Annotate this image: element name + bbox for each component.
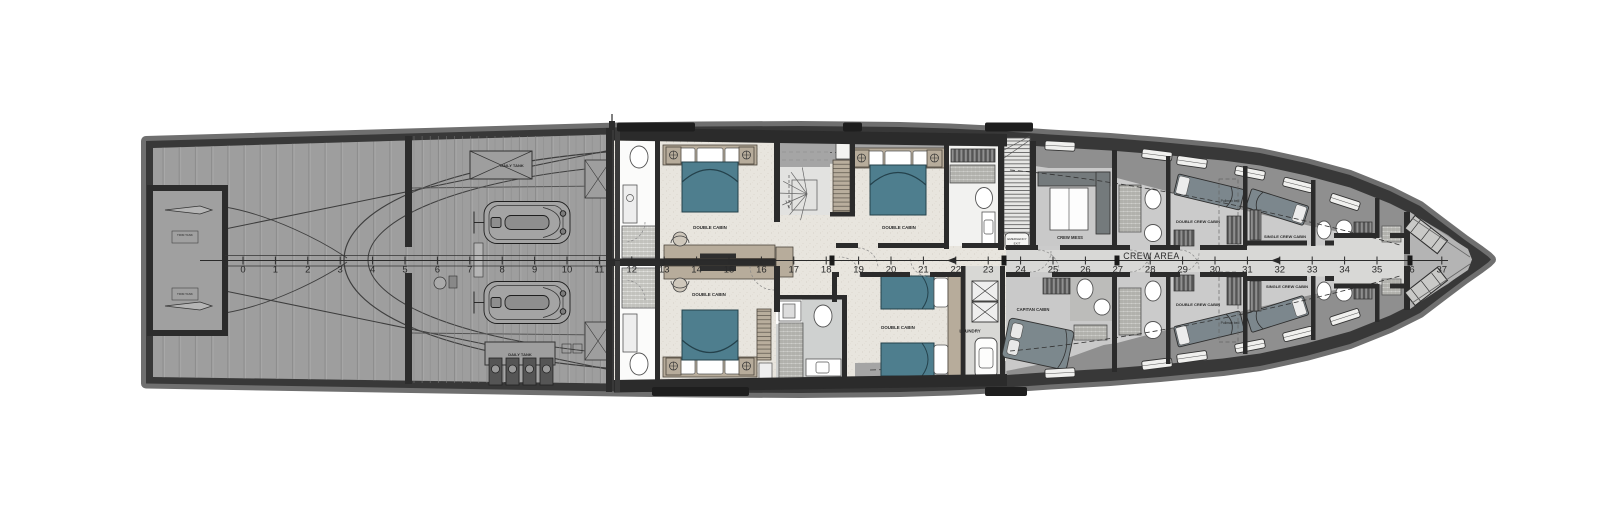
svg-text:EMERGENCY: EMERGENCY [1007, 237, 1026, 241]
svg-text:32: 32 [1275, 265, 1286, 276]
svg-text:12: 12 [627, 265, 638, 276]
svg-text:21: 21 [918, 265, 929, 276]
svg-text:10: 10 [562, 265, 573, 276]
svg-text:15: 15 [724, 265, 735, 276]
svg-text:23: 23 [983, 265, 994, 276]
svg-text:14: 14 [691, 265, 702, 276]
svg-text:DOUBLE CABIN: DOUBLE CABIN [881, 325, 915, 330]
svg-text:25: 25 [1048, 265, 1059, 276]
svg-text:6: 6 [435, 265, 440, 276]
svg-text:CREW AREA: CREW AREA [1123, 251, 1179, 261]
svg-text:EXIT: EXIT [1014, 242, 1021, 246]
svg-text:31: 31 [1242, 265, 1253, 276]
svg-text:8: 8 [500, 265, 505, 276]
svg-text:SINGLE CREW CABIN: SINGLE CREW CABIN [1264, 234, 1306, 239]
svg-text:36: 36 [1404, 265, 1415, 276]
svg-text:Pullman bed: Pullman bed [1221, 199, 1240, 203]
svg-text:CAPITAN CABIN: CAPITAN CABIN [1017, 307, 1050, 312]
svg-text:28: 28 [1145, 265, 1156, 276]
svg-text:34: 34 [1339, 265, 1350, 276]
svg-text:9: 9 [532, 265, 537, 276]
svg-text:13: 13 [659, 265, 670, 276]
svg-text:20: 20 [886, 265, 897, 276]
svg-text:4: 4 [370, 265, 375, 276]
svg-text:22: 22 [951, 265, 962, 276]
svg-text:16: 16 [756, 265, 767, 276]
svg-text:3: 3 [338, 265, 343, 276]
svg-text:DOUBLE CREW CABIN: DOUBLE CREW CABIN [1176, 302, 1220, 307]
svg-text:7: 7 [467, 265, 472, 276]
svg-text:37: 37 [1437, 265, 1448, 276]
svg-text:11: 11 [594, 265, 604, 276]
svg-text:Pullman bed: Pullman bed [1221, 321, 1240, 325]
svg-text:35: 35 [1372, 265, 1383, 276]
svg-text:27: 27 [1113, 265, 1124, 276]
svg-text:17: 17 [789, 265, 800, 276]
svg-text:DAILY TANK: DAILY TANK [500, 163, 524, 168]
svg-text:1: 1 [273, 265, 278, 276]
svg-text:33: 33 [1307, 265, 1318, 276]
svg-text:0: 0 [240, 265, 245, 276]
svg-text:TRIM TANK: TRIM TANK [177, 292, 193, 296]
svg-text:DOUBLE CABIN: DOUBLE CABIN [882, 225, 916, 230]
svg-text:DOUBLE CREW CABIN: DOUBLE CREW CABIN [1176, 219, 1220, 224]
svg-text:SINGLE CREW CABIN: SINGLE CREW CABIN [1266, 284, 1308, 289]
svg-text:DAILY TANK: DAILY TANK [508, 352, 532, 357]
svg-text:19: 19 [853, 265, 864, 276]
svg-text:DOUBLE CABIN: DOUBLE CABIN [693, 225, 727, 230]
svg-text:TRIM TANK: TRIM TANK [177, 233, 193, 237]
svg-text:5: 5 [402, 265, 407, 276]
svg-text:24: 24 [1015, 265, 1026, 276]
svg-text:26: 26 [1080, 265, 1091, 276]
svg-text:CREW MESS: CREW MESS [1057, 235, 1083, 240]
svg-text:18: 18 [821, 265, 832, 276]
svg-text:29: 29 [1177, 265, 1188, 276]
svg-text:DOUBLE CABIN: DOUBLE CABIN [692, 292, 726, 297]
svg-text:30: 30 [1210, 265, 1221, 276]
svg-text:2: 2 [305, 265, 310, 276]
